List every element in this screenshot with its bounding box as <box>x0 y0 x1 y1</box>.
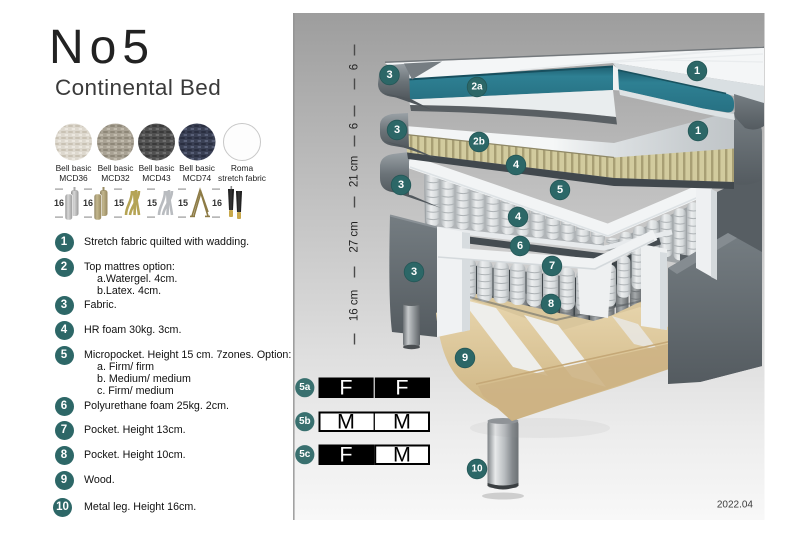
svg-text:3: 3 <box>394 124 400 136</box>
svg-text:4: 4 <box>513 159 520 171</box>
svg-text:10: 10 <box>471 464 483 475</box>
svg-text:21 cm: 21 cm <box>349 156 361 187</box>
svg-text:16 cm: 16 cm <box>349 290 361 321</box>
svg-text:M: M <box>337 410 355 434</box>
svg-text:3: 3 <box>386 69 392 81</box>
svg-text:F: F <box>339 443 352 467</box>
svg-text:5a: 5a <box>299 382 311 393</box>
svg-text:M: M <box>393 410 411 434</box>
svg-text:1: 1 <box>694 65 700 77</box>
svg-text:3: 3 <box>411 266 417 278</box>
svg-text:27 cm: 27 cm <box>349 221 361 252</box>
svg-text:5: 5 <box>557 184 563 196</box>
svg-text:Roma: Roma <box>231 163 254 173</box>
svg-text:Bell basic: Bell basic <box>98 163 134 173</box>
svg-text:16: 16 <box>83 198 93 208</box>
svg-text:2b: 2b <box>473 137 485 148</box>
svg-text:1: 1 <box>695 125 701 137</box>
svg-text:16: 16 <box>54 198 64 208</box>
svg-text:9: 9 <box>462 352 468 364</box>
svg-text:16: 16 <box>212 198 222 208</box>
svg-text:Bell basic: Bell basic <box>56 163 92 173</box>
svg-text:15: 15 <box>178 198 188 208</box>
svg-text:7: 7 <box>549 260 555 272</box>
svg-text:5b: 5b <box>299 416 311 427</box>
svg-text:6: 6 <box>349 123 361 129</box>
svg-text:Bell basic: Bell basic <box>139 163 175 173</box>
svg-text:5c: 5c <box>299 449 311 460</box>
svg-text:15: 15 <box>147 198 157 208</box>
svg-text:F: F <box>339 376 352 400</box>
svg-text:6: 6 <box>517 240 523 252</box>
svg-text:F: F <box>395 376 408 400</box>
svg-text:3: 3 <box>398 179 404 191</box>
svg-text:2a: 2a <box>471 82 483 93</box>
svg-text:8: 8 <box>548 298 554 310</box>
svg-text:Bell basic: Bell basic <box>179 163 215 173</box>
svg-text:4: 4 <box>515 211 522 223</box>
svg-text:2022.04: 2022.04 <box>717 500 754 511</box>
svg-text:M: M <box>393 443 411 467</box>
svg-text:15: 15 <box>114 198 124 208</box>
svg-text:6: 6 <box>349 64 361 70</box>
